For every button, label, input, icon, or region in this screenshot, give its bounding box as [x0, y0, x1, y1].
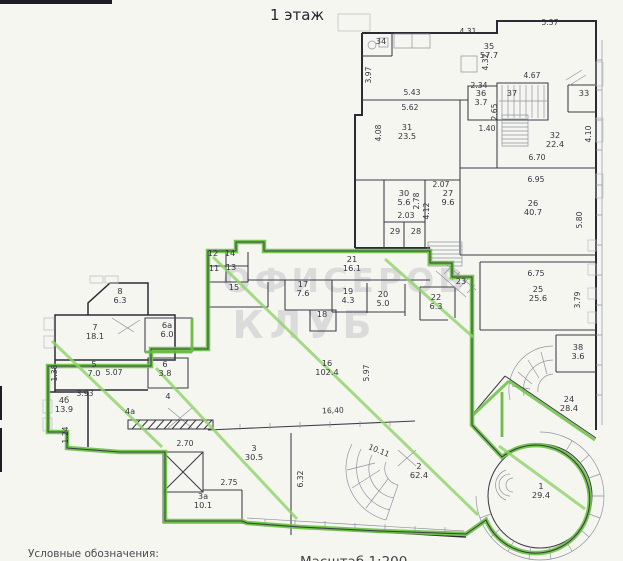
- dimension-label: 2.78: [412, 192, 421, 209]
- room-label: 13: [226, 262, 236, 272]
- room-label: 14: [225, 248, 235, 258]
- floor-plan-svg: 1 этаж ОФИСЕРОВ КЛУБ: [0, 0, 623, 561]
- floor-plan-page: 1 этаж ОФИСЕРОВ КЛУБ: [0, 0, 623, 561]
- room-label: 28: [411, 226, 421, 236]
- dimension-label: 4.12: [422, 202, 431, 219]
- room-label: 383.6: [571, 342, 584, 361]
- room-label: 15: [229, 282, 239, 292]
- dimension-label: 10.11: [367, 442, 391, 459]
- room-label: 4: [165, 391, 170, 401]
- room-label: 11: [209, 263, 219, 273]
- dimension-label: 5.37: [542, 18, 559, 27]
- page-title: 1 этаж: [270, 6, 324, 24]
- dimension-label: 1.40: [479, 124, 496, 133]
- scale-caption: Масштаб 1:200: [300, 554, 407, 561]
- room-label: 3123.5: [398, 122, 416, 141]
- room-label: 2428.4: [560, 394, 578, 413]
- dimension-label: 4.32: [481, 53, 490, 70]
- room-label: 205.0: [376, 289, 389, 308]
- room-label: 279.6: [441, 188, 454, 207]
- dimension-label: 2.34: [471, 81, 488, 90]
- dimension-label: 4.31: [460, 27, 477, 36]
- dimension-label: 6.75: [528, 269, 545, 278]
- room-label: 3а10.1: [194, 491, 212, 510]
- fan-staircase-room2: [346, 444, 398, 520]
- dimension-label: 16,40: [322, 406, 344, 416]
- dimension-label: 2.70: [177, 439, 194, 448]
- room-label: 2640.7: [524, 198, 542, 217]
- room-label: 305.6: [397, 188, 410, 207]
- room-label: 330.5: [245, 443, 263, 462]
- legend-caption: Условные обозначения:: [28, 548, 159, 560]
- room-label: 2525.6: [529, 284, 547, 303]
- dimension-label: 1.38: [50, 364, 59, 381]
- curved-staircase-38: [509, 346, 553, 400]
- dimension-label: 2.75: [221, 478, 238, 487]
- room-label: 177.6: [296, 279, 309, 298]
- dimension-label: 3.79: [573, 291, 582, 308]
- room-label: 33: [579, 88, 589, 98]
- room-label: 18: [317, 309, 327, 319]
- dimension-label: 2.03: [398, 211, 415, 220]
- room-label: 226.3: [429, 292, 442, 311]
- dimension-label: 5.80: [575, 211, 584, 228]
- room-label: 12: [208, 248, 218, 258]
- dimension-label: 3.93: [77, 389, 94, 398]
- dimension-label: 6.70: [529, 153, 546, 162]
- room-label: 4а: [125, 406, 135, 416]
- room-label: 23: [456, 276, 466, 286]
- room-label: 37: [507, 88, 517, 98]
- room-label: 194.3: [341, 286, 354, 305]
- room-label: 34: [376, 36, 386, 46]
- dimension-label: 5.97: [362, 364, 371, 381]
- room-label: 57.0: [87, 359, 100, 378]
- dimension-label: 5.62: [402, 103, 419, 112]
- dimension-label: 1.24: [61, 426, 70, 443]
- room-label: 129.4: [532, 481, 550, 500]
- room-label: 63.8: [158, 359, 171, 378]
- dimension-label: 2.65: [490, 103, 499, 120]
- room-label: 4б13.9: [55, 395, 73, 414]
- room-label: 2116.1: [343, 254, 361, 273]
- dimension-label: 4.08: [374, 124, 383, 141]
- dimension-label: 6.32: [296, 470, 305, 487]
- dimension-label: 5.07: [106, 368, 123, 377]
- room-label: 3222.4: [546, 130, 564, 149]
- dimension-label: 4.67: [524, 71, 541, 80]
- room-label: 29: [390, 226, 400, 236]
- room-label: 6а6.0: [160, 320, 173, 339]
- dimension-label: 2.07: [433, 180, 450, 189]
- room-label: 86.3: [113, 286, 126, 305]
- dimension-label: 4.10: [584, 125, 593, 142]
- dimension-label: 6.95: [528, 175, 545, 184]
- dimension-label: 5.43: [404, 88, 421, 97]
- room-label: 363.7: [474, 88, 487, 107]
- dimension-label: 3.97: [364, 66, 373, 83]
- room-label: 718.1: [86, 322, 104, 341]
